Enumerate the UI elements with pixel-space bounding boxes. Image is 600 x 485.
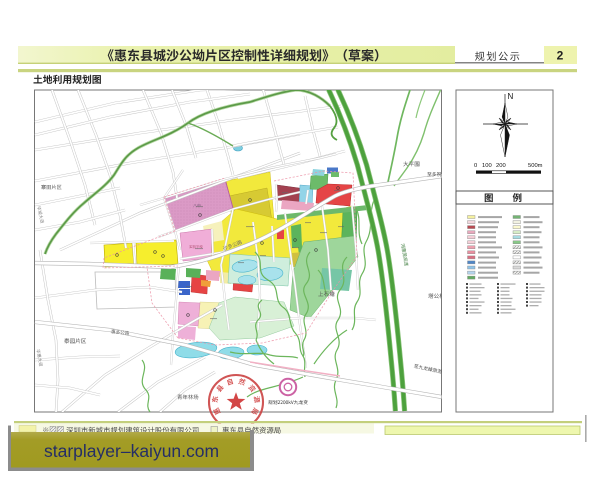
svg-text:200: 200 <box>496 163 506 169</box>
svg-text:0: 0 <box>474 163 477 169</box>
svg-text:100: 100 <box>482 163 492 169</box>
svg-text:starplayer–kaiyun.com: starplayer–kaiyun.com <box>44 441 219 461</box>
svg-text:2: 2 <box>557 49 564 63</box>
svg-text:N: N <box>508 92 514 101</box>
svg-text:500m: 500m <box>528 163 543 169</box>
